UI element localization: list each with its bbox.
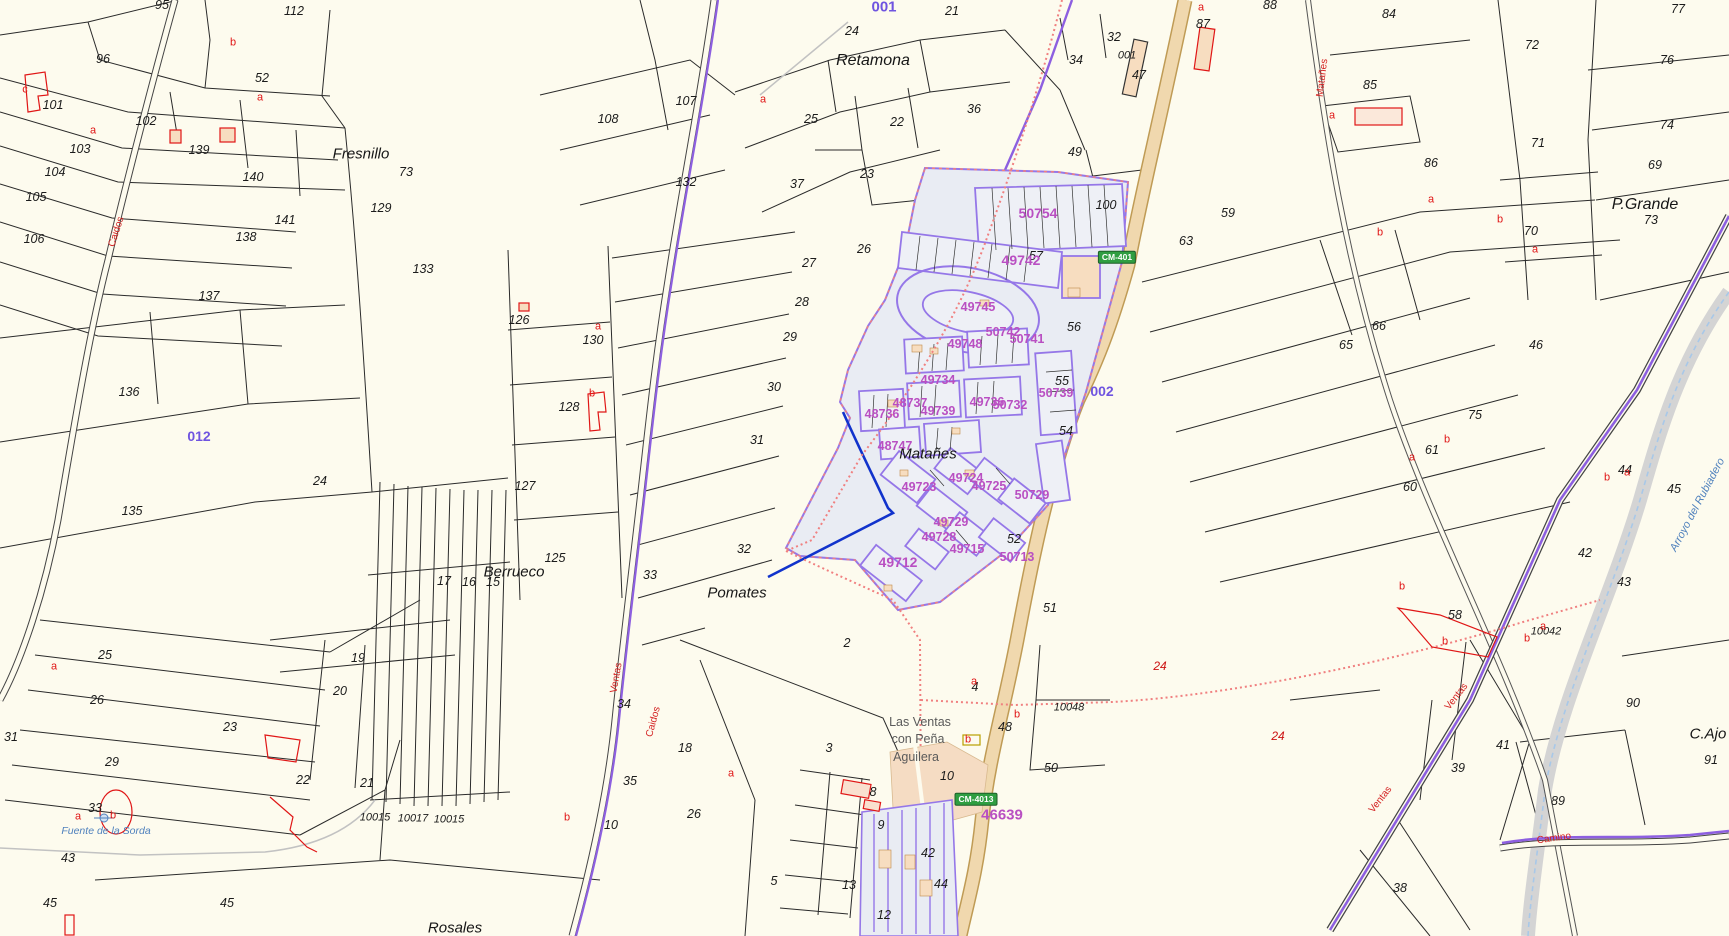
map-canvas[interactable]: 9511296521011021031391401041051061381371… (0, 0, 1729, 936)
cadastral-map-graphic (0, 0, 1729, 936)
